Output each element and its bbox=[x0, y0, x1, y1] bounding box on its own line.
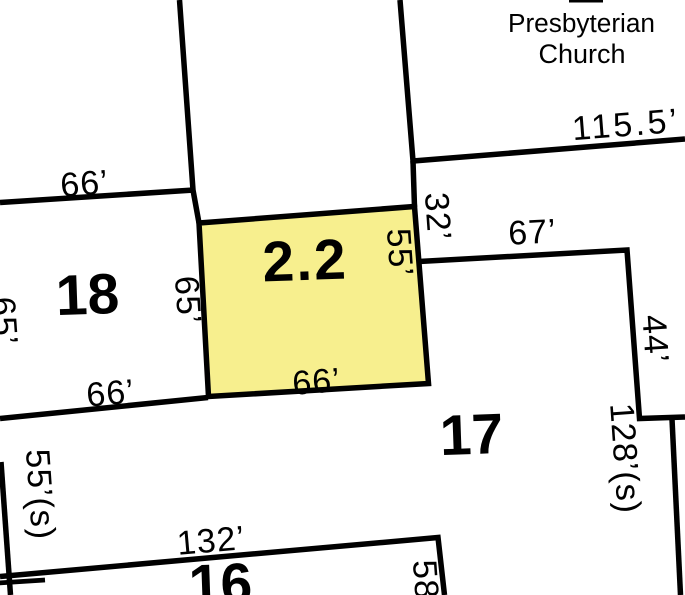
svg-text:17: 17 bbox=[439, 402, 505, 468]
svg-text:Church: Church bbox=[538, 39, 625, 69]
svg-text:67’: 67’ bbox=[507, 212, 557, 252]
svg-text:16: 16 bbox=[188, 551, 254, 595]
svg-text:18: 18 bbox=[55, 262, 121, 328]
svg-text:44’: 44’ bbox=[634, 314, 675, 365]
svg-text:128’(s): 128’(s) bbox=[602, 402, 648, 515]
svg-text:55’(s): 55’(s) bbox=[18, 448, 62, 541]
svg-text:66’: 66’ bbox=[291, 361, 342, 403]
svg-text:32’: 32’ bbox=[417, 191, 458, 242]
svg-text:65’: 65’ bbox=[167, 275, 208, 326]
svg-text:66’: 66’ bbox=[59, 163, 110, 205]
svg-text:65’: 65’ bbox=[0, 296, 25, 347]
svg-text:58’: 58’ bbox=[405, 559, 446, 595]
svg-text:55’: 55’ bbox=[379, 227, 420, 278]
svg-text:2.2: 2.2 bbox=[261, 228, 348, 295]
svg-text:66’: 66’ bbox=[85, 372, 137, 414]
svg-text:Presbyterian: Presbyterian bbox=[508, 8, 655, 38]
